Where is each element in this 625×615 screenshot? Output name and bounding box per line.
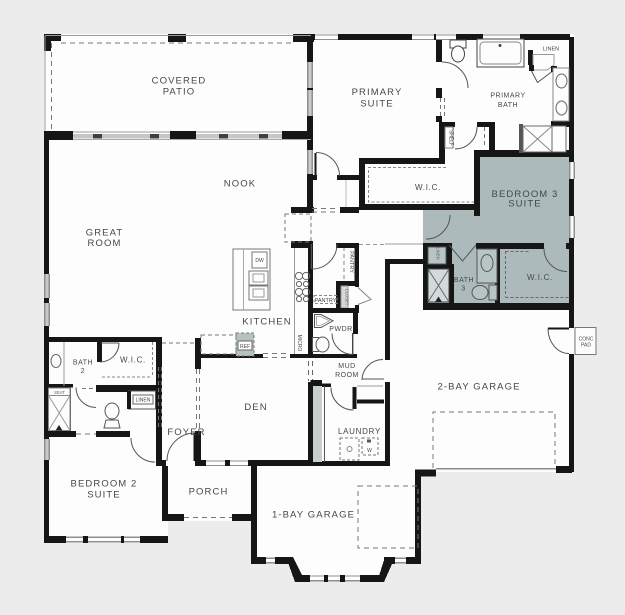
svg-text:PATIO: PATIO	[163, 87, 196, 98]
svg-text:LINEN: LINEN	[136, 398, 151, 404]
svg-text:SEAT: SEAT	[54, 390, 65, 395]
svg-text:BATH: BATH	[73, 360, 93, 367]
svg-text:W.I.C.: W.I.C.	[527, 273, 553, 282]
svg-text:SHELF: SHELF	[448, 130, 454, 146]
svg-text:1-BAY GARAGE: 1-BAY GARAGE	[272, 510, 355, 521]
svg-text:NOOK: NOOK	[224, 179, 256, 190]
svg-text:BEDROOM 2: BEDROOM 2	[71, 479, 138, 490]
svg-text:SUITE: SUITE	[87, 490, 120, 501]
svg-text:PAD: PAD	[581, 343, 591, 349]
svg-text:PORCH: PORCH	[189, 487, 229, 498]
svg-text:CLOSET: CLOSET	[345, 289, 350, 306]
svg-text:2-BAY GARAGE: 2-BAY GARAGE	[437, 382, 520, 393]
svg-text:MICRO: MICRO	[296, 335, 302, 352]
svg-text:REF: REF	[240, 344, 250, 350]
svg-text:PANTRY: PANTRY	[348, 251, 354, 273]
svg-text:LAUNDRY: LAUNDRY	[338, 427, 381, 436]
svg-text:2: 2	[81, 368, 85, 375]
svg-text:DEN: DEN	[244, 402, 267, 413]
svg-text:COVERED: COVERED	[152, 76, 207, 87]
svg-text:PRIMARY: PRIMARY	[490, 93, 525, 100]
svg-text:BATH: BATH	[454, 277, 474, 284]
svg-text:SUITE: SUITE	[508, 199, 541, 210]
svg-text:MUD: MUD	[338, 363, 355, 370]
svg-text:PANTRY: PANTRY	[315, 298, 337, 304]
svg-text:ROOM: ROOM	[88, 238, 122, 249]
svg-text:LINEN: LINEN	[543, 47, 559, 53]
svg-text:GREAT: GREAT	[86, 228, 124, 239]
svg-text:PRIMARY: PRIMARY	[352, 87, 403, 98]
svg-text:3: 3	[461, 286, 465, 293]
svg-text:PWDR: PWDR	[329, 326, 352, 333]
svg-text:KITCHEN: KITCHEN	[242, 317, 291, 328]
svg-text:LINEN: LINEN	[436, 247, 441, 259]
svg-text:SUITE: SUITE	[360, 99, 393, 110]
svg-text:W.I.C.: W.I.C.	[120, 356, 146, 365]
svg-text:BATH: BATH	[498, 102, 518, 109]
svg-text:W: W	[367, 448, 372, 454]
svg-text:W.I.C.: W.I.C.	[415, 183, 441, 192]
svg-text:ROOM: ROOM	[335, 372, 359, 379]
svg-text:FOYER: FOYER	[167, 427, 205, 438]
svg-text:DW: DW	[255, 258, 264, 264]
